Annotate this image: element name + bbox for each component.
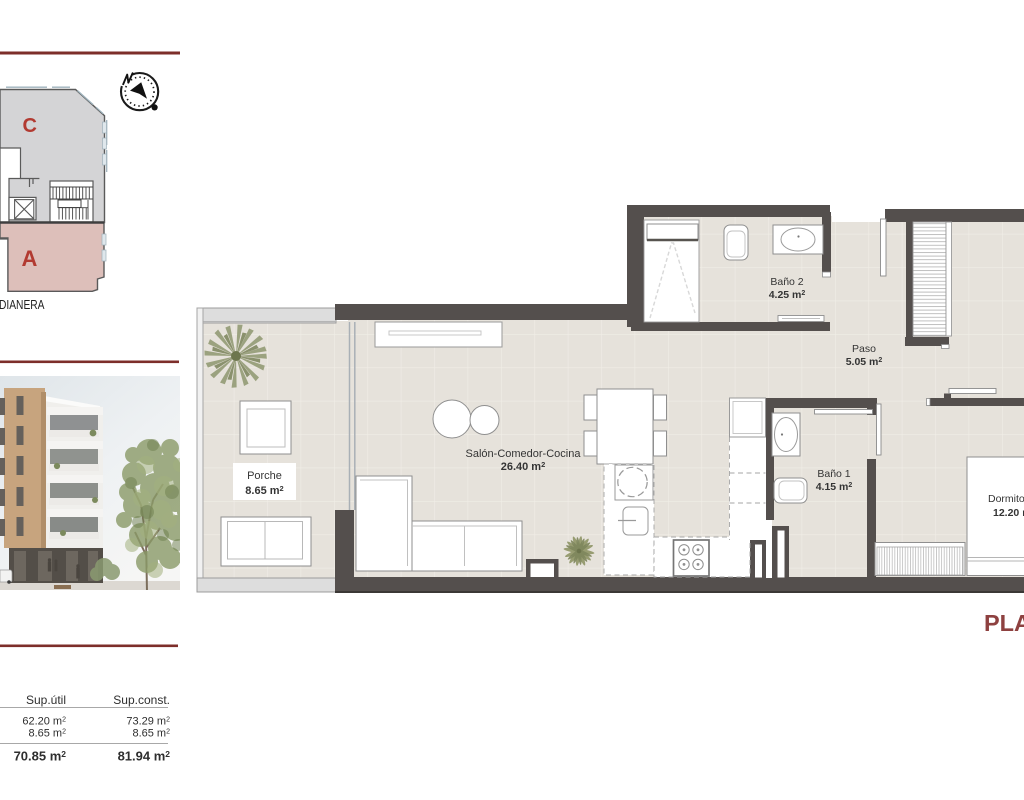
svg-text:Salón-Comedor-Cocina: Salón-Comedor-Cocina (466, 448, 582, 460)
svg-text:A: A (22, 246, 38, 271)
svg-text:C: C (23, 115, 37, 137)
svg-text:81.94 m2: 81.94 m2 (118, 749, 171, 764)
svg-text:8.65 m2: 8.65 m2 (245, 484, 283, 497)
svg-text:62.20 m2: 62.20 m2 (22, 716, 66, 728)
svg-text:DIANERA: DIANERA (0, 297, 45, 312)
svg-text:73.29 m2: 73.29 m2 (126, 716, 170, 728)
svg-text:8.65 m2: 8.65 m2 (132, 728, 170, 740)
svg-text:PLAN: PLAN (984, 610, 1024, 636)
svg-text:70.85 m2: 70.85 m2 (14, 749, 67, 764)
svg-text:8.65 m2: 8.65 m2 (28, 728, 66, 740)
svg-text:Paso: Paso (852, 343, 876, 355)
svg-text:4.25 m2: 4.25 m2 (769, 289, 806, 301)
svg-text:Sup.útil: Sup.útil (26, 693, 66, 707)
svg-text:Baño 2: Baño 2 (770, 276, 803, 288)
svg-text:Dormitorio: Dormitorio (988, 493, 1024, 505)
svg-text:12.20 m2: 12.20 m2 (993, 507, 1024, 519)
svg-text:Porche: Porche (247, 470, 282, 482)
svg-text:4.15 m2: 4.15 m2 (816, 481, 853, 493)
svg-text:5.05 m2: 5.05 m2 (846, 356, 883, 368)
svg-text:26.40 m2: 26.40 m2 (501, 460, 546, 473)
svg-text:Baño 1: Baño 1 (817, 468, 850, 480)
svg-text:Sup.const.: Sup.const. (113, 693, 170, 707)
